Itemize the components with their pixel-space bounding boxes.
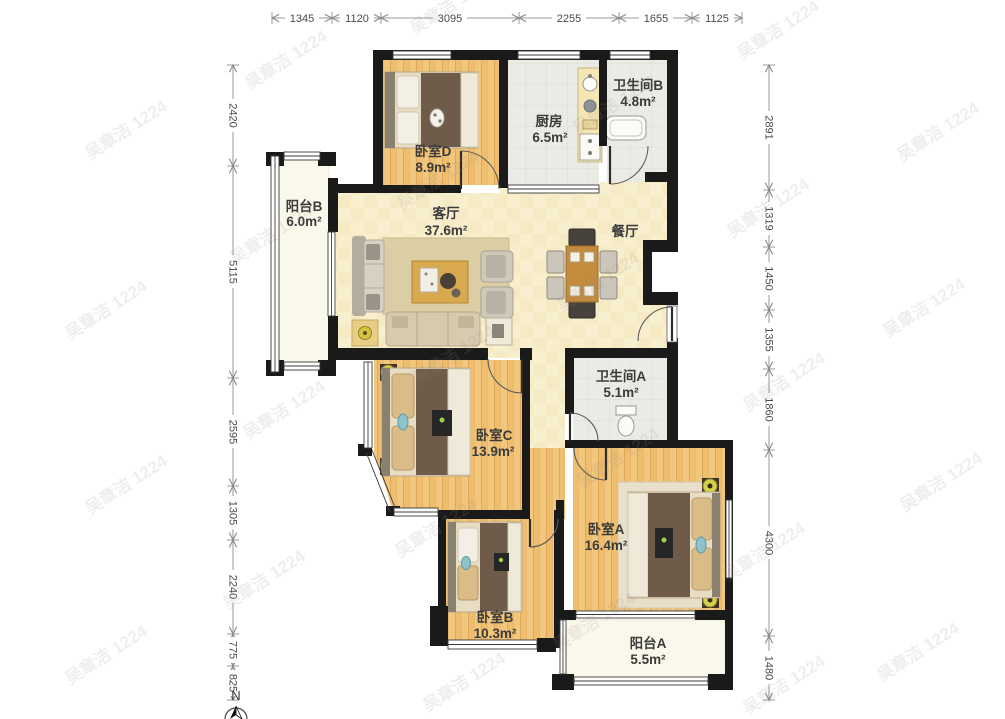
window	[610, 51, 650, 59]
dim-right-3: 1450	[763, 266, 775, 290]
bed-bedroom-d	[385, 72, 478, 148]
dim-left-1: 2420	[227, 103, 239, 127]
room-label-bathroom-a: 卫生间A	[596, 368, 646, 384]
room-label-kitchen: 厨房	[536, 113, 563, 129]
room-label-dining-room: 餐厅	[611, 223, 640, 239]
bedroom-c-window-bottom	[394, 508, 438, 516]
window	[393, 51, 451, 59]
watermark-text: 吴章洁 1224	[81, 95, 171, 163]
floor-plan-svg: 卧室D 8.9m² 厨房 6.5m² 卫生间B 4.8m² 阳台B 6.0m² …	[0, 0, 1005, 719]
room-label-bedroom-d: 卧室D	[415, 143, 452, 159]
bed-bedroom-a	[618, 478, 720, 608]
kitchen-slider-door	[508, 185, 599, 193]
dim-left-4: 1305	[227, 501, 239, 525]
room-label-bedroom-b: 卧室B	[477, 609, 514, 625]
dim-top-6: 1125	[705, 13, 729, 25]
dimension-top: 1345 1120 3095 2255 1655 1125	[272, 11, 742, 25]
window	[518, 51, 580, 59]
room-area-kitchen: 6.5m²	[532, 130, 568, 145]
room-label-living-room: 客厅	[432, 205, 460, 221]
bedroom-b-bay-window	[448, 640, 537, 649]
dim-left-3: 2595	[227, 420, 239, 444]
dim-right-4: 1355	[763, 327, 775, 351]
room-label-balcony-a: 阳台A	[630, 635, 667, 651]
balcony-b-floor	[279, 159, 329, 369]
watermark-text: 吴章洁 1224	[879, 273, 969, 341]
watermark-text: 吴章洁 1224	[61, 275, 151, 343]
dim-top-2: 1120	[345, 13, 369, 25]
watermark-text: 吴章洁 1224	[739, 347, 829, 415]
watermark-text: 吴章洁 1224	[733, 0, 823, 63]
room-area-balcony-a: 5.5m²	[630, 652, 666, 667]
watermark-text: 吴章洁 1224	[241, 25, 331, 93]
room-area-living-room: 37.6m²	[425, 223, 468, 238]
watermark-text: 吴章洁 1224	[893, 97, 983, 165]
bathtub	[606, 116, 646, 140]
dim-top-4: 2255	[557, 13, 581, 25]
dim-top-5: 1655	[644, 13, 668, 25]
room-area-bedroom-a: 16.4m²	[585, 538, 628, 553]
room-label-bedroom-c: 卧室C	[476, 427, 513, 443]
room-label-bedroom-a: 卧室A	[588, 521, 625, 537]
room-area-bedroom-b: 10.3m²	[474, 626, 517, 641]
floor-plan-page: 卧室D 8.9m² 厨房 6.5m² 卫生间B 4.8m² 阳台B 6.0m² …	[0, 0, 1005, 719]
watermark-text: 吴章洁 1224	[81, 450, 171, 518]
watermark-text: 吴章洁 1224	[739, 650, 829, 718]
compass-north-label: N	[231, 688, 240, 703]
toilet	[616, 406, 636, 436]
dim-top-1: 1345	[290, 13, 314, 25]
dim-left-6: 775	[227, 641, 239, 659]
bed-bedroom-b	[448, 522, 522, 612]
watermark-text: 吴章洁 1224	[239, 375, 329, 443]
watermark-text: 吴章洁 1224	[873, 617, 963, 685]
watermark-text: 吴章洁 1224	[419, 647, 509, 715]
dim-right-1: 2891	[763, 115, 775, 139]
room-area-bathroom-a: 5.1m²	[603, 385, 639, 400]
balcony-b-slider	[328, 232, 335, 316]
watermark-text: 吴章洁 1224	[896, 447, 986, 515]
watermark-text: 吴章洁 1224	[61, 620, 151, 688]
room-area-bedroom-c: 13.9m²	[472, 444, 515, 459]
bedroom-c-window-left	[364, 362, 372, 448]
dim-right-7: 1480	[763, 656, 775, 680]
